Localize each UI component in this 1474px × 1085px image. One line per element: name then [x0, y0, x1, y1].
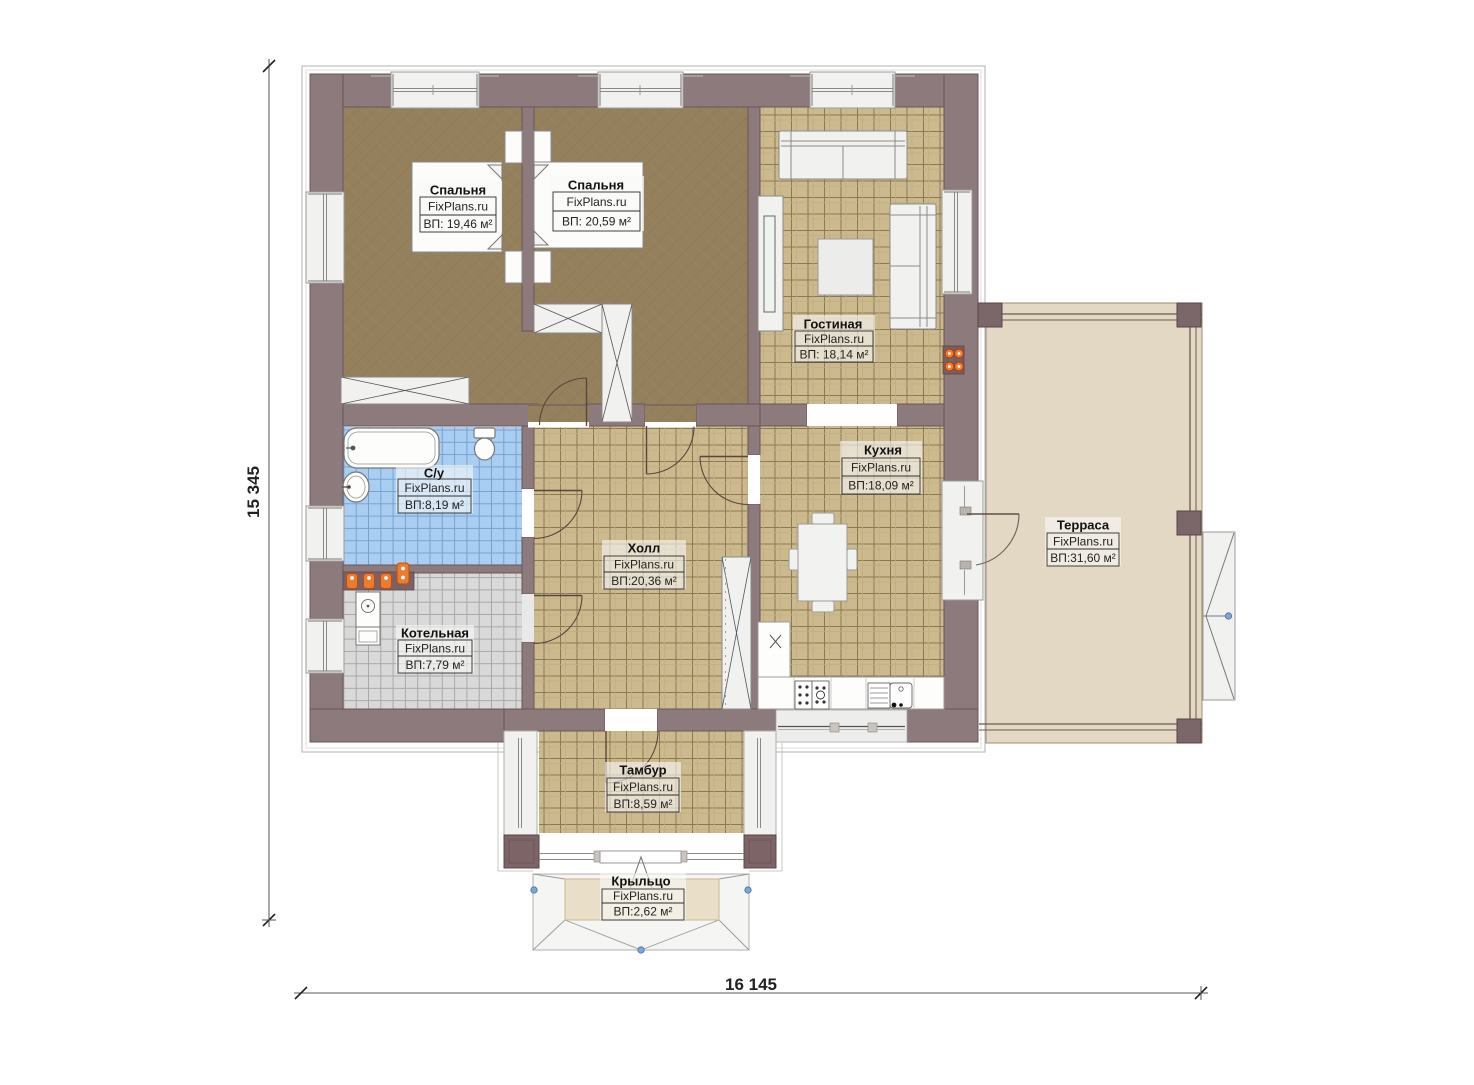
svg-text:ВП:18,09 м²: ВП:18,09 м² — [848, 479, 914, 493]
svg-text:ВП:7,79 м²: ВП:7,79 м² — [406, 658, 465, 672]
svg-text:ВП:31,60 м²: ВП:31,60 м² — [1050, 551, 1116, 565]
svg-text:FixPlans.ru: FixPlans.ru — [613, 780, 673, 794]
svg-text:ВП: 20,59 м²: ВП: 20,59 м² — [562, 215, 631, 229]
svg-text:15 345: 15 345 — [244, 466, 263, 518]
svg-text:Спальня: Спальня — [430, 183, 486, 198]
svg-text:Гостиная: Гостиная — [804, 317, 863, 332]
svg-text:FixPlans.ru: FixPlans.ru — [405, 642, 465, 656]
svg-text:FixPlans.ru: FixPlans.ru — [613, 889, 673, 903]
svg-text:ВП:8,19 м²: ВП:8,19 м² — [405, 498, 464, 512]
svg-text:ВП:2,62 м²: ВП:2,62 м² — [614, 905, 673, 919]
svg-text:FixPlans.ru: FixPlans.ru — [614, 558, 674, 572]
svg-text:Холл: Холл — [628, 541, 661, 556]
svg-text:Спальня: Спальня — [568, 178, 624, 193]
svg-text:FixPlans.ru: FixPlans.ru — [428, 200, 488, 214]
svg-text:ВП: 19,46 м²: ВП: 19,46 м² — [424, 217, 493, 231]
svg-text:С/у: С/у — [424, 466, 445, 481]
svg-text:Котельная: Котельная — [401, 626, 469, 641]
svg-text:FixPlans.ru: FixPlans.ru — [566, 195, 626, 209]
svg-text:16 145: 16 145 — [725, 975, 777, 994]
svg-text:FixPlans.ru: FixPlans.ru — [851, 461, 911, 475]
svg-text:Тамбур: Тамбур — [619, 763, 666, 778]
svg-text:ВП:20,36 м²: ВП:20,36 м² — [611, 574, 677, 588]
svg-text:FixPlans.ru: FixPlans.ru — [1053, 535, 1113, 549]
svg-text:ВП: 18,14 м²: ВП: 18,14 м² — [800, 348, 869, 362]
svg-text:FixPlans.ru: FixPlans.ru — [404, 481, 464, 495]
svg-text:ВП:8,59 м²: ВП:8,59 м² — [614, 797, 673, 811]
svg-text:Терраса: Терраса — [1057, 518, 1110, 533]
svg-text:FixPlans.ru: FixPlans.ru — [804, 332, 864, 346]
svg-text:Крыльцо: Крыльцо — [611, 874, 670, 889]
svg-text:Кухня: Кухня — [864, 443, 902, 458]
